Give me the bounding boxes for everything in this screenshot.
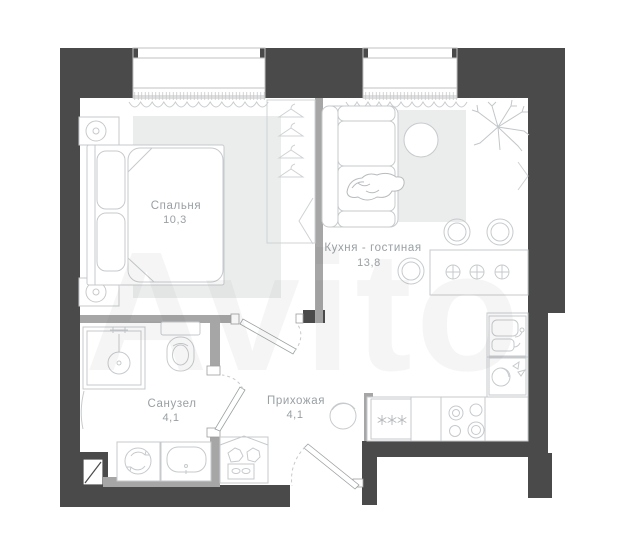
plant [472,100,529,151]
nightstand-top [79,117,119,145]
coffee-table [404,123,438,157]
washing-machine [117,442,160,481]
vent-shaft-bathroom [83,459,103,485]
bedroom-label: Спальня [151,200,201,212]
bathroom-sink [161,442,211,481]
entrance-door [292,444,359,489]
fridge-asterisk-icon [378,415,407,425]
hallway-closet [220,436,268,483]
floor-plan: Спальня 10,3 Кухня - гостиная 13,8 Сануз… [0,0,617,540]
window-kitchen [363,48,457,98]
curtain-bedroom [129,92,268,107]
window-bedroom [133,48,265,98]
hanger-icons [279,104,303,177]
sofa [322,106,398,227]
avito-watermark: Avito [85,217,524,407]
cabinet-door-mark [518,162,528,190]
curtain-kitchen [346,92,467,107]
hallway-area: 4,1 [286,409,303,421]
bathroom-area: 4,1 [162,412,179,424]
